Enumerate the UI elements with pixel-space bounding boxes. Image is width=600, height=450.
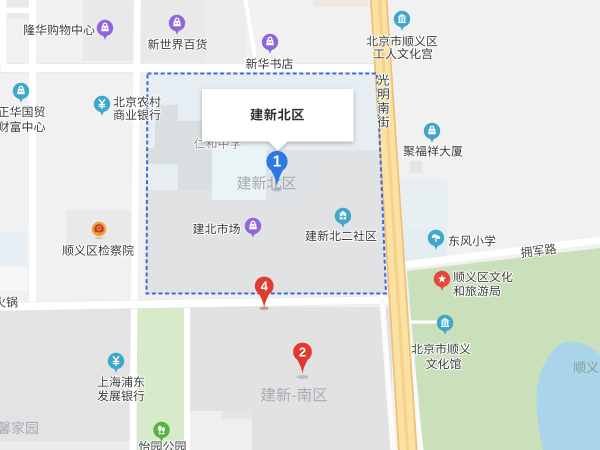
svg-text:1: 1 (273, 154, 282, 171)
svg-text:2: 2 (299, 345, 306, 360)
svg-text:4: 4 (261, 279, 269, 294)
